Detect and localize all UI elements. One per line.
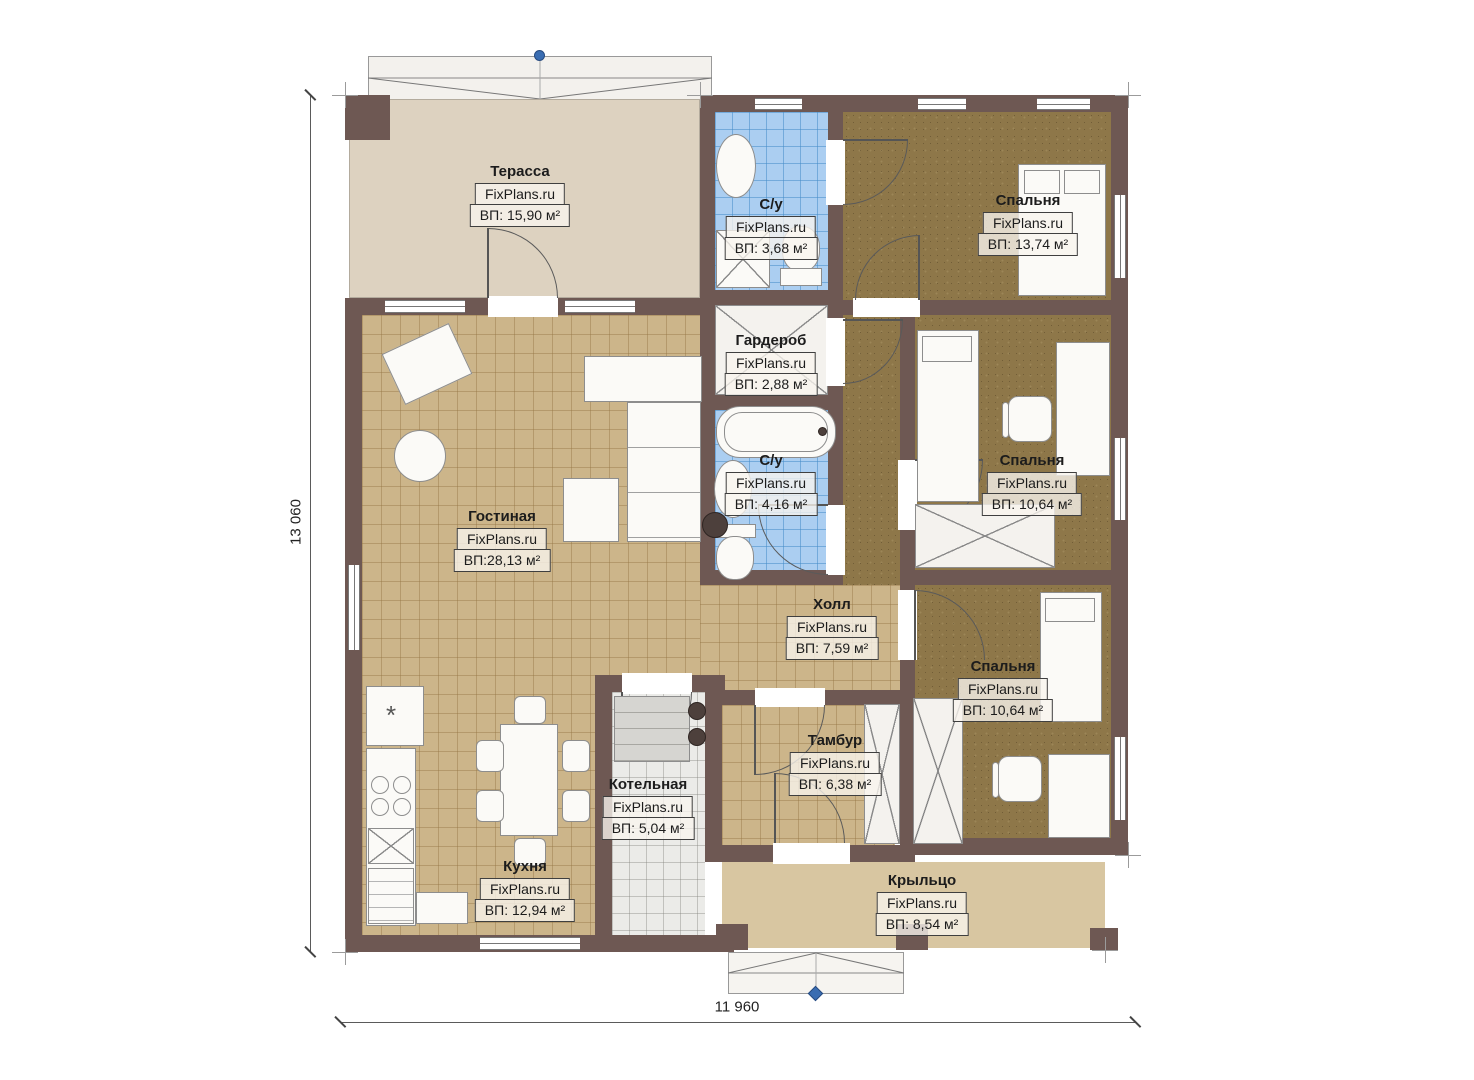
watermark: FixPlans.ru: [603, 796, 693, 818]
kitchen-sink-symbol: [368, 828, 414, 864]
chair-symbol: [476, 790, 504, 822]
room-area: ВП: 2,88 м²: [725, 373, 818, 395]
room-label-bathroom-mid: С/у FixPlans.ru ВП: 4,16 м²: [725, 452, 818, 516]
toilet-symbol: [716, 536, 754, 580]
watermark: FixPlans.ru: [987, 472, 1077, 494]
wall-boiler-tambour: [705, 692, 722, 862]
room-name: Кухня: [503, 858, 547, 875]
door-opening: [488, 296, 558, 317]
terrace-steps-outline: [368, 56, 712, 100]
pillow-symbol: [1024, 170, 1060, 194]
wall-bedroom2-3: [915, 570, 1128, 585]
pillow-symbol: [922, 336, 972, 362]
window-symbol: [480, 937, 580, 950]
bathtub-inner: [724, 412, 828, 452]
room-name: Гостиная: [468, 508, 536, 525]
watermark: FixPlans.ru: [726, 216, 816, 238]
room-area: ВП: 6,38 м²: [789, 773, 882, 795]
window-symbol: [385, 300, 465, 313]
room-label-boiler: Котельная FixPlans.ru ВП: 5,04 м²: [602, 776, 695, 840]
window-symbol: [1114, 195, 1126, 278]
watermark: FixPlans.ru: [457, 528, 547, 550]
room-area: ВП: 4,16 м²: [725, 493, 818, 515]
door-leaf: [754, 705, 756, 775]
room-area: ВП:28,13 м²: [454, 549, 551, 571]
room-label-bedroom-3: Спальня FixPlans.ru ВП: 10,64 м²: [953, 658, 1053, 722]
window-symbol: [348, 565, 360, 650]
room-area: ВП: 15,90 м²: [470, 204, 570, 226]
sofa-symbol: [627, 402, 701, 542]
office-chair-back: [1002, 402, 1009, 438]
room-label-bedroom-1: Спальня FixPlans.ru ВП: 13,74 м²: [978, 192, 1078, 256]
room-label-porch: Крыльцо FixPlans.ru ВП: 8,54 м²: [876, 872, 969, 936]
room-name: Гардероб: [736, 332, 807, 349]
snowflake-icon: *: [386, 702, 396, 728]
chair-symbol: [562, 790, 590, 822]
porch-post: [716, 924, 748, 950]
office-chair-symbol: [998, 756, 1042, 802]
window-symbol: [918, 98, 966, 110]
door-leaf: [914, 590, 916, 660]
counter-extension-symbol: [416, 892, 468, 924]
water-heater-symbol: [702, 512, 728, 538]
tv-bench-symbol: [584, 356, 702, 402]
flue-pipe-icon: [688, 728, 706, 746]
faucet-icon: [818, 427, 827, 436]
room-area: ВП: 8,54 м²: [876, 913, 969, 935]
coffee-table-symbol: [563, 478, 619, 542]
sink-symbol: [716, 134, 756, 198]
stove-burner-icon: [393, 776, 411, 794]
watermark: FixPlans.ru: [726, 472, 816, 494]
corner-tick: [1092, 937, 1118, 963]
room-label-living: Гостиная FixPlans.ru ВП:28,13 м²: [454, 508, 551, 572]
room-name: Спальня: [1000, 452, 1065, 469]
chair-symbol: [562, 740, 590, 772]
door-leaf: [774, 773, 776, 843]
watermark: FixPlans.ru: [726, 352, 816, 374]
window-symbol: [755, 98, 802, 110]
corner-tick: [1115, 82, 1141, 108]
dimension-height-label: 13 060: [288, 499, 305, 545]
flue-pipe-icon: [688, 702, 706, 720]
stove-burner-icon: [371, 798, 389, 816]
room-area: ВП: 10,64 м²: [982, 493, 1082, 515]
office-chair-back: [992, 762, 999, 798]
room-area: ВП: 5,04 м²: [602, 817, 695, 839]
watermark: FixPlans.ru: [790, 752, 880, 774]
room-name: Тамбур: [808, 732, 862, 749]
room-name: Крыльцо: [888, 872, 956, 889]
door-opening: [853, 298, 920, 317]
door-leaf: [918, 235, 920, 300]
dimension-line-horizontal: [340, 1022, 1135, 1023]
room-label-bathroom-top: С/у FixPlans.ru ВП: 3,68 м²: [725, 196, 818, 260]
room-name: Котельная: [609, 776, 688, 793]
pillow-symbol: [1045, 598, 1095, 622]
window-symbol: [565, 300, 635, 313]
desk-symbol: [1048, 754, 1110, 838]
room-label-bedroom-2: Спальня FixPlans.ru ВП: 10,64 м²: [982, 452, 1082, 516]
corner-tick: [332, 939, 358, 965]
room-label-kitchen: Кухня FixPlans.ru ВП: 12,94 м²: [475, 858, 575, 922]
floor-plan-canvas: * Терасса FixPlans.ru ВП: 15,90 м² С/у F…: [0, 0, 1474, 1080]
room-label-tambour: Тамбур FixPlans.ru ВП: 6,38 м²: [789, 732, 882, 796]
room-name: Спальня: [996, 192, 1061, 209]
boiler-unit-symbol: [614, 696, 690, 762]
chair-symbol: [476, 740, 504, 772]
window-symbol: [1114, 438, 1126, 520]
wall-bath-wardrobe: [715, 290, 828, 305]
round-table-symbol: [394, 430, 446, 482]
office-chair-symbol: [1008, 396, 1052, 442]
room-area: ВП: 7,59 м²: [786, 637, 879, 659]
stove-burner-icon: [393, 798, 411, 816]
window-symbol: [1114, 737, 1126, 820]
dishwasher-symbol: [368, 868, 414, 924]
watermark: FixPlans.ru: [958, 678, 1048, 700]
room-name: Терасса: [490, 163, 549, 180]
pillow-symbol: [1064, 170, 1100, 194]
watermark: FixPlans.ru: [475, 183, 565, 205]
room-area: ВП: 13,74 м²: [978, 233, 1078, 255]
watermark: FixPlans.ru: [480, 878, 570, 900]
room-area: ВП: 12,94 м²: [475, 899, 575, 921]
corner-tick: [687, 82, 713, 108]
door-opening: [622, 673, 692, 694]
node-marker-top[interactable]: [534, 50, 545, 61]
corner-tick: [1115, 842, 1141, 868]
window-symbol: [1037, 98, 1090, 110]
watermark: FixPlans.ru: [877, 892, 967, 914]
room-label-terrace: Терасса FixPlans.ru ВП: 15,90 м²: [470, 163, 570, 227]
dimension-width-label: 11 960: [715, 999, 760, 1016]
room-name: С/у: [759, 196, 782, 213]
door-leaf: [843, 319, 903, 321]
room-area: ВП: 10,64 м²: [953, 699, 1053, 721]
room-area: ВП: 3,68 м²: [725, 237, 818, 259]
watermark: FixPlans.ru: [787, 616, 877, 638]
room-label-hall: Холл FixPlans.ru ВП: 7,59 м²: [786, 596, 879, 660]
room-name: Холл: [813, 596, 851, 613]
door-leaf: [843, 139, 908, 141]
room-name: Спальня: [971, 658, 1036, 675]
door-opening: [826, 505, 845, 575]
door-leaf: [487, 228, 489, 298]
stove-burner-icon: [371, 776, 389, 794]
watermark: FixPlans.ru: [983, 212, 1073, 234]
dining-table-symbol: [500, 724, 558, 836]
room-label-wardrobe: Гардероб FixPlans.ru ВП: 2,88 м²: [725, 332, 818, 396]
corner-tick: [332, 82, 358, 108]
chair-symbol: [514, 696, 546, 724]
toilet-tank-symbol: [780, 268, 822, 286]
dimension-line-vertical: [310, 95, 311, 952]
door-opening-entrance: [773, 843, 850, 864]
room-name: С/у: [759, 452, 782, 469]
